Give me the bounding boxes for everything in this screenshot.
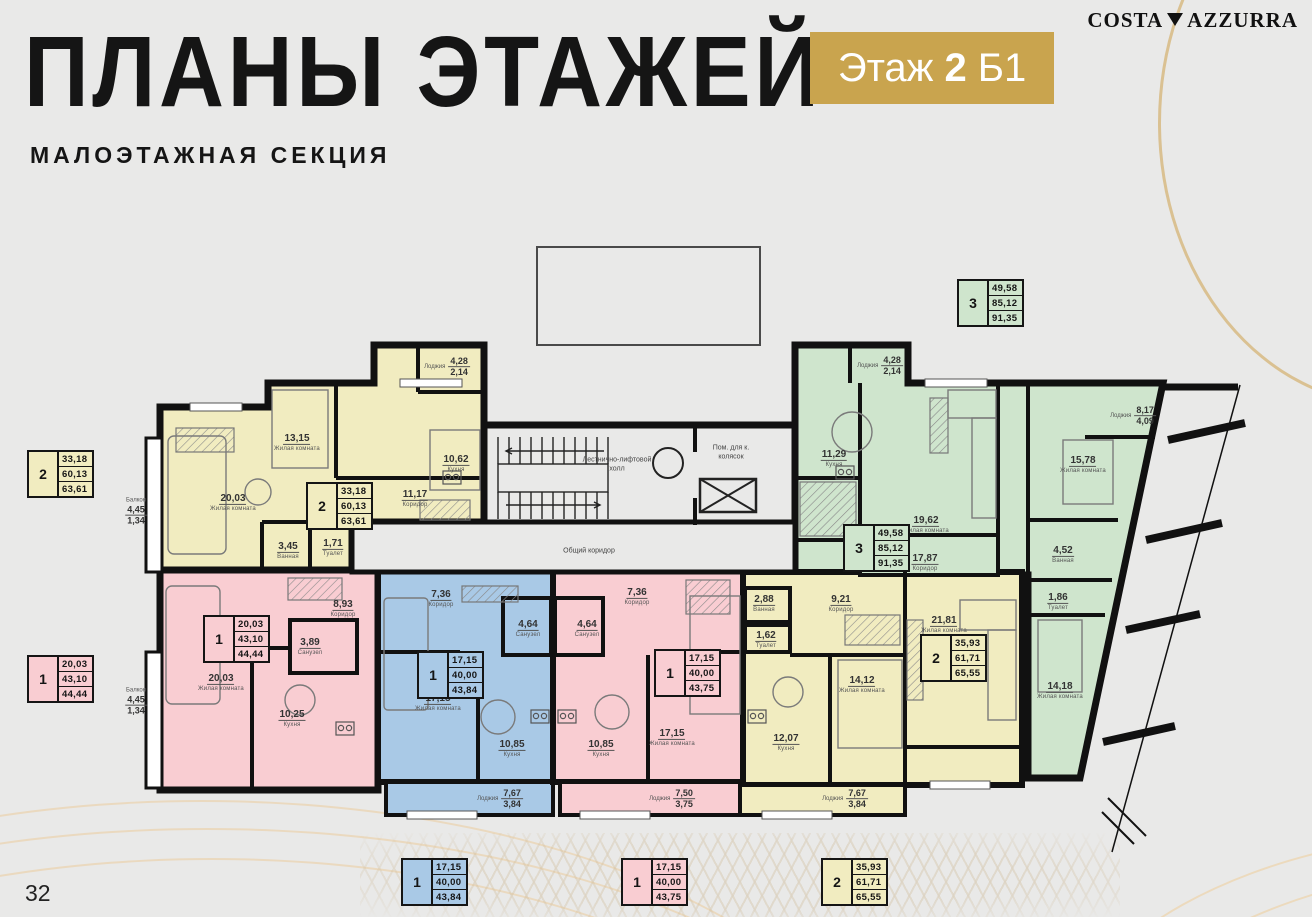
room-label-pc-loggia: Лоджия 7,503,75	[649, 788, 695, 810]
room-label-g-bath: 4,52 Ванная	[1052, 540, 1074, 564]
room-label-yl-living1: 20,03 Жилая комната	[210, 488, 256, 512]
apartment-badge-plan-pink-left: 1 20,0343,1044,44	[203, 615, 270, 663]
room-label-yl-bath: 3,45 Ванная	[277, 536, 299, 560]
canopy-outline	[537, 247, 760, 345]
room-label-pc-corridor: 7,36 Коридор	[624, 582, 649, 606]
apartment-badge-plan-blue: 1 17,1540,0043,84	[417, 651, 484, 699]
room-label-yr-loggia: Лоджия 7,673,84	[822, 788, 868, 810]
floor-plan-svg	[0, 0, 1312, 917]
room-label-yr-kitchen: 12,07 Кухня	[772, 728, 799, 752]
room-label-pl-balcony: Балкон 4,451,34	[125, 688, 147, 717]
room-label-yl-balcony: Балкон 4,451,34	[125, 498, 147, 527]
room-label-g-loggia-right: Лоджия 8,174,09	[1110, 405, 1156, 427]
room-label-yr-living2: 21,81 Жилая комната	[921, 610, 967, 634]
room-label-pc-living: 17,15 Жилая комната	[649, 723, 695, 747]
apartment-badge-left-1room: 1 20,0343,1044,44	[27, 655, 94, 703]
room-label-yl-loggia: Лоджия 4,282,14	[424, 356, 470, 378]
room-label-yl-wc: 1,71 Туалет	[322, 533, 343, 557]
room-label-blue-kitchen: 10,85 Кухня	[498, 734, 525, 758]
room-label-g-wc: 1,86 Туалет	[1047, 587, 1068, 611]
apartment-badge-plan-green: 3 49,5885,1291,35	[843, 524, 910, 572]
room-label-g-living2: 15,78 Жилая комната	[1060, 450, 1106, 474]
apartment-badge-top-3room: 3 49,5885,1291,35	[957, 279, 1024, 327]
apartment-badge-plan-pink-center: 1 17,1540,0043,75	[654, 649, 721, 697]
room-label-pl-corridor: 8,93 Коридор	[330, 594, 355, 618]
room-label-g-loggia-top: Лоджия 4,282,14	[857, 355, 903, 377]
room-label-g-kitchen: 11,29 Кухня	[821, 444, 847, 468]
room-label-yl-corridor: 11,17 Коридор	[402, 484, 428, 508]
room-label-g-living3: 14,18 Жилая комната	[1037, 676, 1083, 700]
room-label-yr-bath: 2,88 Ванная	[753, 589, 775, 613]
apartment-badge-plan-yellow-right: 2 35,9361,7165,55	[920, 634, 987, 682]
room-label-blue-loggia: Лоджия 7,673,84	[477, 788, 523, 810]
room-label-blue-bath: 4,64 Санузел	[516, 614, 541, 638]
room-label-pc-bath: 4,64 Санузел	[575, 614, 600, 638]
room-label-pl-bath: 3,89 Санузел	[298, 632, 323, 656]
room-label-pl-living: 20,03 Жилая комната	[198, 668, 244, 692]
room-label-yl-kitchen: 10,62 Кухня	[442, 449, 469, 473]
apartment-badge-left-2room: 2 33,1860,1363,61	[27, 450, 94, 498]
room-label-yr-corridor: 9,21 Коридор	[828, 589, 853, 613]
room-label-yl-living2: 13,15 Жилая комната	[274, 428, 320, 452]
legend-badge-blue: 1 17,1540,0043,84	[401, 858, 468, 906]
room-label-blue-corridor: 7,36 Коридор	[428, 584, 453, 608]
legend-badge-pink: 1 17,1540,0043,75	[621, 858, 688, 906]
legend-badge-yellow: 2 35,9361,7165,55	[821, 858, 888, 906]
stroller-room-label: Пом. для к. колясок	[713, 444, 750, 463]
stair-hall-label: Лестнично-лифтовой холл	[583, 456, 652, 475]
room-label-pc-kitchen: 10,85 Кухня	[587, 734, 614, 758]
common-corridor-label: Общий коридор	[563, 546, 615, 555]
room-label-pl-kitchen: 10,25 Кухня	[278, 704, 305, 728]
room-label-yr-wc: 1,62 Туалет	[755, 625, 776, 649]
room-label-g-corridor: 17,87 Коридор	[911, 548, 938, 572]
room-label-yr-living1: 14,12 Жилая комната	[839, 670, 885, 694]
floor-plan-page: ПЛАНЫ ЭТАЖЕЙ МАЛОЭТАЖНАЯ СЕКЦИЯ Этаж 2 Б…	[0, 0, 1312, 917]
apartment-badge-plan-yellow-left: 2 33,1860,1363,61	[306, 482, 373, 530]
